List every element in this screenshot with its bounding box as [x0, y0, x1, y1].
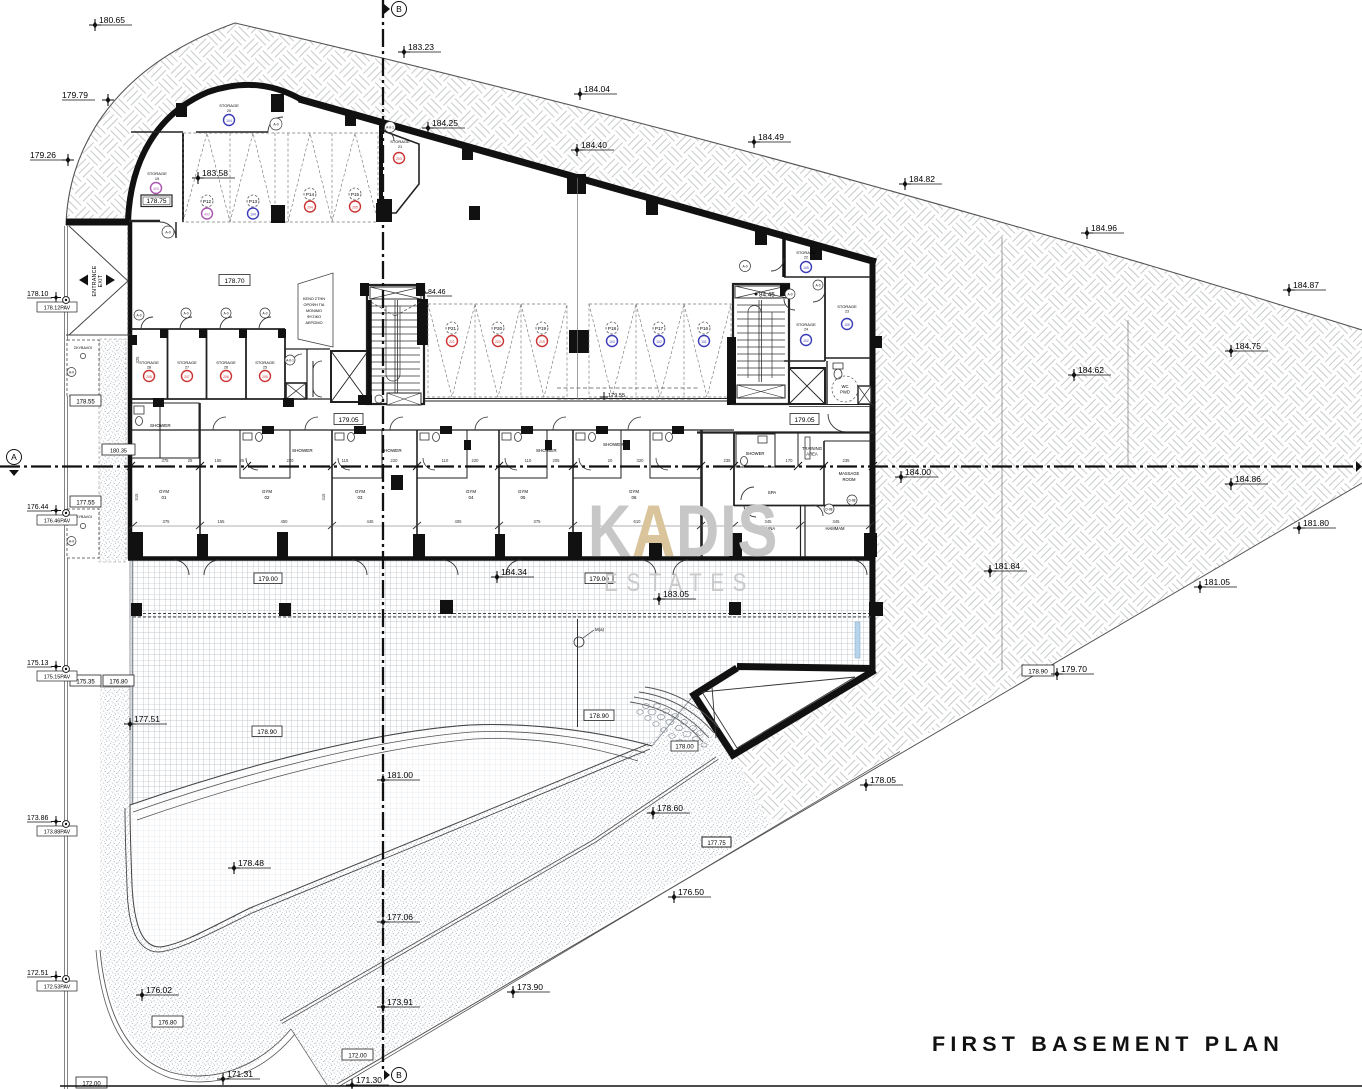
- svg-text:183.58: 183.58: [202, 168, 228, 178]
- svg-text:M(a): M(a): [595, 627, 605, 632]
- svg-text:STORAGE: STORAGE: [219, 103, 239, 108]
- svg-text:A-0: A-0: [69, 371, 74, 375]
- svg-text:P21: P21: [448, 326, 457, 331]
- svg-text:101: 101: [701, 340, 707, 344]
- svg-text:178.90: 178.90: [257, 729, 277, 736]
- svg-text:176.02: 176.02: [146, 985, 172, 995]
- svg-text:515: 515: [134, 493, 139, 501]
- svg-text:WC: WC: [842, 384, 849, 389]
- svg-text:178.90: 178.90: [1028, 668, 1048, 675]
- svg-text:ΟΡΟΦΗ ΓΙΑ: ΟΡΟΦΗ ΓΙΑ: [304, 303, 325, 307]
- svg-text:172.51: 172.51: [27, 970, 49, 977]
- svg-text:25: 25: [263, 366, 267, 370]
- svg-text:STORAGE: STORAGE: [216, 360, 236, 365]
- svg-text:178.70: 178.70: [224, 278, 245, 285]
- svg-text:STORAGE: STORAGE: [796, 250, 816, 255]
- svg-text:179.79: 179.79: [62, 90, 88, 100]
- svg-text:450: 450: [281, 519, 289, 524]
- svg-text:A-0: A-0: [165, 231, 170, 235]
- svg-text:19: 19: [155, 177, 159, 181]
- svg-text:175.15PAV: 175.15PAV: [44, 675, 71, 681]
- svg-text:155: 155: [218, 519, 226, 524]
- svg-text:ΜΟΝΙΜΟ: ΜΟΝΙΜΟ: [306, 309, 322, 313]
- svg-text:84.46: 84.46: [428, 289, 446, 296]
- svg-text:24: 24: [804, 328, 808, 332]
- svg-text:28: 28: [147, 366, 151, 370]
- svg-text:27: 27: [185, 366, 189, 370]
- svg-text:180.65: 180.65: [99, 15, 125, 25]
- svg-text:01: 01: [162, 495, 167, 500]
- svg-text:ΑΕΡΙΣΜΟ: ΑΕΡΙΣΜΟ: [305, 321, 322, 325]
- svg-text:115: 115: [342, 458, 349, 463]
- svg-text:P19: P19: [538, 326, 547, 331]
- svg-text:204: 204: [307, 205, 313, 209]
- svg-text:21: 21: [398, 145, 402, 149]
- svg-text:172.00: 172.00: [348, 1053, 367, 1059]
- svg-text:SHOWER: SHOWER: [746, 451, 765, 456]
- svg-text:GYM: GYM: [466, 489, 476, 494]
- svg-text:A-0-1: A-0-1: [286, 359, 294, 363]
- svg-text:175.35: 175.35: [76, 679, 95, 685]
- svg-text:A-0: A-0: [263, 312, 268, 316]
- svg-text:FIRST BASEMENT PLAN: FIRST BASEMENT PLAN: [932, 1032, 1284, 1056]
- svg-text:173.86: 173.86: [27, 815, 49, 822]
- svg-text:184.00: 184.00: [905, 467, 931, 477]
- svg-text:207: 207: [184, 375, 190, 379]
- svg-text:179.00: 179.00: [258, 576, 278, 583]
- svg-text:SHOWER: SHOWER: [603, 442, 624, 447]
- svg-text:184.75: 184.75: [1235, 341, 1261, 351]
- svg-text:179.55: 179.55: [608, 393, 625, 399]
- svg-text:205: 205: [352, 205, 358, 209]
- svg-text:184.82: 184.82: [909, 174, 935, 184]
- svg-text:P12: P12: [203, 199, 212, 204]
- svg-text:177.75: 177.75: [707, 841, 726, 847]
- svg-text:ΚΕΝΟ ΣΤΗΝ: ΚΕΝΟ ΣΤΗΝ: [303, 297, 325, 301]
- svg-text:178.00: 178.00: [675, 745, 694, 751]
- svg-text:184.86: 184.86: [1235, 474, 1261, 484]
- svg-text:403: 403: [153, 187, 159, 191]
- svg-text:176.44: 176.44: [27, 504, 49, 511]
- svg-text:A-0: A-0: [69, 540, 74, 544]
- svg-text:178.60: 178.60: [657, 803, 683, 813]
- svg-text:181.80: 181.80: [1303, 518, 1329, 528]
- svg-text:205: 205: [553, 458, 561, 463]
- svg-text:345: 345: [833, 519, 841, 524]
- svg-text:172.53PAV: 172.53PAV: [44, 985, 71, 991]
- svg-text:A-0: A-0: [137, 314, 142, 318]
- svg-text:184.62: 184.62: [1078, 365, 1104, 375]
- svg-text:445: 445: [367, 519, 375, 524]
- svg-text:184.49: 184.49: [758, 132, 784, 142]
- svg-text:A-0: A-0: [816, 284, 821, 288]
- svg-text:184.04: 184.04: [584, 84, 610, 94]
- svg-text:A-0: A-0: [273, 123, 278, 127]
- svg-text:HAMMAM: HAMMAM: [825, 526, 845, 531]
- svg-text:402: 402: [204, 212, 210, 216]
- svg-text:178.48: 178.48: [238, 858, 264, 868]
- svg-text:P20: P20: [494, 326, 503, 331]
- svg-text:170: 170: [786, 458, 794, 463]
- svg-text:STORAGE: STORAGE: [796, 322, 816, 327]
- svg-text:A-0: A-0: [743, 265, 748, 269]
- svg-text:177.51: 177.51: [134, 714, 160, 724]
- svg-text:375: 375: [163, 519, 171, 524]
- svg-text:105: 105: [844, 323, 850, 327]
- svg-text:02: 02: [265, 495, 270, 500]
- svg-text:171.30: 171.30: [356, 1075, 382, 1085]
- svg-text:GYM: GYM: [262, 489, 272, 494]
- svg-text:102: 102: [656, 340, 662, 344]
- svg-text:P14: P14: [306, 192, 315, 197]
- svg-text:B: B: [396, 4, 402, 14]
- svg-text:D-08: D-08: [826, 508, 833, 512]
- svg-text:A-0: A-0: [788, 293, 793, 297]
- svg-text:177.06: 177.06: [387, 912, 413, 922]
- svg-text:178.05: 178.05: [870, 775, 896, 785]
- svg-text:206: 206: [223, 375, 229, 379]
- svg-text:STORAGE: STORAGE: [255, 360, 275, 365]
- svg-text:22: 22: [804, 256, 808, 260]
- svg-text:B: B: [396, 1070, 402, 1080]
- svg-text:105: 105: [803, 266, 809, 270]
- svg-text:219: 219: [539, 340, 545, 344]
- svg-text:178.75: 178.75: [146, 198, 167, 205]
- svg-text:179.05: 179.05: [338, 417, 359, 424]
- svg-text:STORAGE: STORAGE: [147, 171, 167, 176]
- svg-text:PWD: PWD: [840, 390, 850, 395]
- svg-text:110: 110: [442, 458, 449, 463]
- svg-text:208: 208: [146, 375, 152, 379]
- svg-text:184.25: 184.25: [432, 118, 458, 128]
- svg-text:ROOM: ROOM: [842, 477, 856, 482]
- svg-text:178.10: 178.10: [27, 291, 49, 298]
- svg-text:03: 03: [358, 495, 363, 500]
- svg-text:P17: P17: [655, 326, 664, 331]
- svg-text:415: 415: [321, 493, 326, 501]
- svg-text:184.96: 184.96: [1091, 223, 1117, 233]
- svg-text:220: 220: [391, 458, 399, 463]
- svg-text:220: 220: [287, 458, 295, 463]
- svg-text:A-0: A-0: [224, 312, 229, 316]
- svg-text:180.35: 180.35: [110, 448, 127, 454]
- svg-text:84.45: 84.45: [759, 292, 775, 299]
- svg-text:KADIS: KADIS: [588, 491, 778, 572]
- svg-text:183.23: 183.23: [408, 42, 434, 52]
- svg-text:155: 155: [215, 458, 223, 463]
- svg-text:184.40: 184.40: [581, 140, 607, 150]
- svg-text:325: 325: [135, 356, 140, 364]
- svg-text:P13: P13: [249, 199, 258, 204]
- svg-text:221: 221: [449, 340, 455, 344]
- svg-text:176.80: 176.80: [158, 1020, 177, 1026]
- svg-text:25: 25: [240, 458, 245, 463]
- svg-text:GYM: GYM: [355, 489, 365, 494]
- svg-text:SHOWER: SHOWER: [292, 448, 313, 453]
- svg-text:102: 102: [803, 339, 809, 343]
- svg-text:P16: P16: [700, 326, 709, 331]
- svg-text:181.00: 181.00: [387, 770, 413, 780]
- svg-text:EXIT: EXIT: [98, 274, 104, 287]
- svg-text:405: 405: [455, 519, 463, 524]
- svg-text:205: 205: [262, 375, 268, 379]
- svg-text:AREA: AREA: [806, 452, 818, 457]
- svg-text:173.90: 173.90: [517, 982, 543, 992]
- svg-text:178.90: 178.90: [589, 713, 609, 720]
- svg-text:171.31: 171.31: [227, 1069, 253, 1079]
- svg-text:STORAGE: STORAGE: [177, 360, 197, 365]
- svg-text:181.84: 181.84: [994, 561, 1020, 571]
- svg-text:375: 375: [162, 458, 170, 463]
- svg-text:A-0-1: A-0-1: [386, 126, 394, 130]
- svg-text:179.05: 179.05: [794, 417, 815, 424]
- svg-text:A-0: A-0: [184, 312, 189, 316]
- svg-text:P15: P15: [351, 192, 360, 197]
- svg-text:320: 320: [637, 458, 645, 463]
- svg-text:SHOWER: SHOWER: [150, 423, 171, 428]
- svg-text:178.55: 178.55: [76, 399, 95, 405]
- svg-text:176.80: 176.80: [109, 679, 128, 685]
- svg-text:173.88PAV: 173.88PAV: [44, 830, 71, 836]
- svg-text:220: 220: [472, 458, 480, 463]
- svg-text:104: 104: [250, 212, 256, 216]
- svg-text:181.05: 181.05: [1204, 577, 1230, 587]
- svg-text:P18: P18: [608, 326, 617, 331]
- svg-text:MASSAGE: MASSAGE: [839, 471, 860, 476]
- svg-text:104: 104: [226, 119, 232, 123]
- svg-text:ΣΚΥΒΑΛΟΙ: ΣΚΥΒΑΛΟΙ: [74, 346, 92, 350]
- svg-text:235: 235: [843, 458, 851, 463]
- svg-text:179.70: 179.70: [1061, 664, 1087, 674]
- svg-text:25: 25: [188, 458, 193, 463]
- svg-text:STORAGE: STORAGE: [837, 304, 857, 309]
- svg-text:D-08: D-08: [849, 499, 856, 503]
- svg-text:175.13: 175.13: [27, 660, 49, 667]
- svg-text:103: 103: [609, 340, 615, 344]
- svg-text:203: 203: [396, 157, 402, 161]
- svg-text:235: 235: [724, 458, 732, 463]
- svg-text:176.46PAV: 176.46PAV: [44, 519, 71, 525]
- svg-text:26: 26: [224, 366, 228, 370]
- svg-text:ESTATES: ESTATES: [604, 568, 755, 596]
- svg-text:23: 23: [845, 310, 849, 314]
- svg-text:SHOWER: SHOWER: [381, 448, 402, 453]
- svg-text:173.91: 173.91: [387, 997, 413, 1007]
- svg-text:20: 20: [227, 109, 231, 113]
- svg-text:184.87: 184.87: [1293, 280, 1319, 290]
- svg-text:A: A: [11, 452, 17, 462]
- svg-text:STORAGE: STORAGE: [390, 139, 410, 144]
- svg-text:375: 375: [534, 519, 542, 524]
- svg-text:04: 04: [469, 495, 474, 500]
- svg-text:179.26: 179.26: [30, 150, 56, 160]
- svg-text:177.55: 177.55: [76, 500, 95, 506]
- svg-text:20: 20: [608, 458, 613, 463]
- svg-text:GYM: GYM: [159, 489, 169, 494]
- svg-text:STORAGE: STORAGE: [139, 360, 159, 365]
- svg-text:184.34: 184.34: [501, 567, 527, 577]
- svg-text:110: 110: [525, 458, 532, 463]
- svg-text:220: 220: [495, 340, 501, 344]
- svg-text:05: 05: [521, 495, 526, 500]
- svg-text:176.50: 176.50: [678, 887, 704, 897]
- svg-text:ΦΥΣΙΚΟ: ΦΥΣΙΚΟ: [307, 315, 321, 319]
- svg-text:178.12PAV: 178.12PAV: [44, 306, 71, 312]
- svg-text:GYM: GYM: [518, 489, 528, 494]
